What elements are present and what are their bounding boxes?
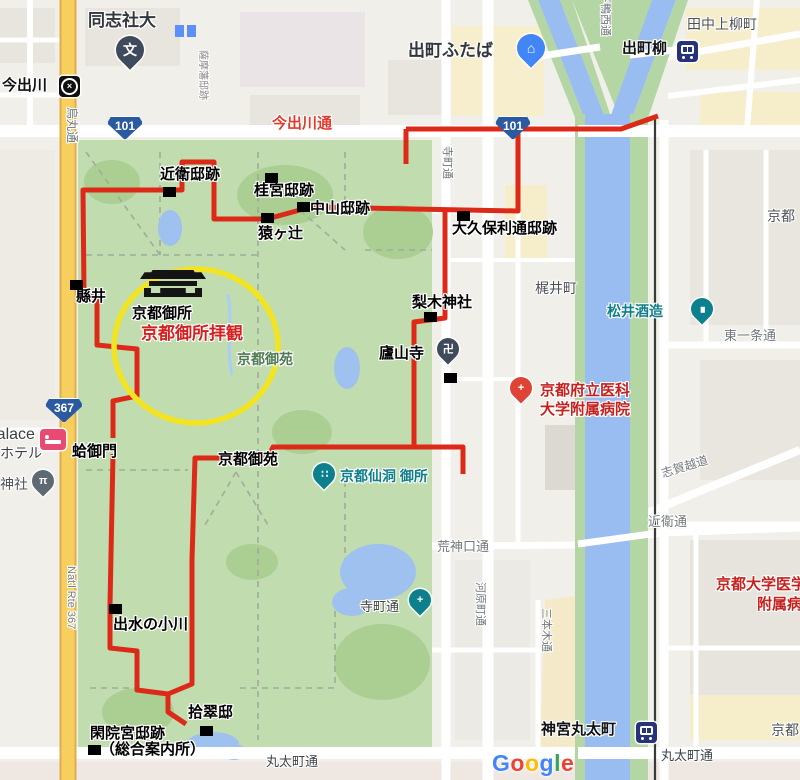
street-label-higashi-ichijo-dori: 東一条通: [724, 329, 776, 343]
station-label-jingu-marutamachi[interactable]: 神宮丸太町: [541, 722, 616, 738]
poi-label-kyodai-line1[interactable]: 京都大学医学部: [716, 577, 800, 593]
doshisha-building-tile: [187, 25, 196, 37]
street-label-imadegawa-dori: 今出川通: [272, 116, 332, 132]
poi-label-hospital-line2[interactable]: 大学附属病院: [540, 402, 630, 418]
annotation-shusuitei: 拾翠邸: [188, 705, 233, 721]
poi-label-palace-hotel-line1[interactable]: Palace: [0, 427, 35, 444]
annotation-sarugatsuji: 猿ヶ辻: [258, 226, 303, 242]
street-label-shimogamo-nishi: 下鴨西通: [598, 0, 610, 36]
street-label-marutamachi-east: 丸太町通: [661, 749, 713, 763]
marker-square: [424, 312, 437, 322]
annotation-konoe-teiato: 近衛邸跡: [160, 167, 220, 183]
annotation-gosho-haikan: 京都御所拝観: [141, 325, 243, 343]
street-label-konoe-dori: 近衛通: [648, 515, 687, 529]
marker-square: [70, 280, 83, 290]
street-label-marutamachi-west: 丸太町通: [266, 755, 318, 769]
annotation-nakayama-teiato: 中山邸跡: [310, 201, 370, 217]
annotation-okubo-toshimichi-teiato: 大久保利通邸跡: [452, 221, 557, 237]
marker-square: [457, 211, 470, 221]
palace-icon: [140, 270, 206, 297]
subway-station-icon[interactable]: ×: [59, 76, 80, 97]
annotation-katsuranomiya-teiato: 桂宮邸跡: [254, 183, 314, 199]
poi-label-matsui-shuzo[interactable]: 松井酒造: [607, 304, 663, 319]
annotation-kanin-no-miya-line2: （総合案内所）: [100, 742, 205, 758]
subway-glyph: ×: [61, 78, 78, 95]
area-label-kajii-cho: 梶井町: [535, 281, 577, 296]
street-label-kawaramachi-dori: 河原町通: [473, 582, 485, 626]
street-label-sanbongi-dori: 三本木通: [539, 608, 551, 652]
marker-square: [88, 745, 101, 755]
poi-label-sento-gosho[interactable]: 京都仙洞 御所: [340, 469, 428, 484]
street-label-satsuma-hanteiato: 薩摩藩邸跡: [197, 50, 208, 100]
street-label-natl-rte-367: Nat'l Rte 367: [64, 566, 76, 629]
park-label-kyoto-gyoen[interactable]: 京都御苑: [237, 352, 293, 367]
area-label-kyoto-clipped-se: 京都: [771, 723, 799, 738]
street-label-kojinguchi-dori: 荒神口通: [437, 540, 489, 554]
poi-label-palace-hotel-line2[interactable]: ホテル: [0, 446, 42, 461]
area-label-kyoto-clipped-ne: 京都: [767, 209, 795, 224]
train-station-icon-demachiyanagi[interactable]: [677, 41, 698, 62]
street-label-teramachi-north: 寺町通: [440, 146, 452, 179]
poi-label-kyodai-line2[interactable]: 附属病院: [757, 597, 800, 613]
annotation-agatai: 縣井: [76, 289, 106, 305]
annotation-kyoto-gosho: 京都御所: [132, 306, 192, 322]
google-logo[interactable]: Google: [492, 750, 574, 777]
annotation-rozanji: 廬山寺: [379, 346, 424, 362]
marker-square: [109, 604, 122, 614]
marker-square: [265, 173, 278, 183]
marker-square: [297, 202, 310, 212]
marker-square: [200, 726, 213, 736]
station-label-imadegawa[interactable]: 今出川: [2, 78, 47, 94]
marker-square: [261, 213, 274, 223]
annotation-kanin-no-miya-line1: 閑院宮邸跡: [90, 726, 165, 742]
marker-square: [444, 373, 457, 383]
area-label-tanaka-kamiyanagi: 田中上柳町: [687, 17, 757, 32]
poi-label-doshisha[interactable]: 同志社大: [88, 12, 156, 30]
annotation-nashinoki-jinja: 梨木神社: [412, 295, 472, 311]
street-label-teramachi-south: 寺町通: [360, 600, 399, 614]
doshisha-building-tile: [175, 25, 184, 37]
hotel-icon[interactable]: [40, 429, 66, 450]
poi-label-shrine[interactable]: 神社: [0, 477, 28, 492]
train-station-icon-jingu-marutamachi[interactable]: [636, 722, 657, 743]
station-label-demachiyanagi[interactable]: 出町柳: [622, 41, 667, 57]
annotation-hamaguri-gomon: 蛤御門: [72, 444, 117, 460]
bed-icon: [45, 435, 49, 439]
annotation-kyoto-gyoen: 京都御苑: [218, 452, 278, 468]
marker-square: [163, 187, 176, 197]
poi-label-hospital-line1[interactable]: 京都府立医科: [540, 383, 630, 399]
annotation-demizu-no-ogawa: 出水の小川: [113, 617, 188, 633]
poi-label-demachi-futaba[interactable]: 出町ふたば: [408, 42, 493, 60]
map-canvas[interactable]: 今出川通 烏丸通 Nat'l Rte 367 寺町通 寺町通 河原町通 三本木通…: [0, 0, 800, 780]
street-label-karasuma-dori: 烏丸通: [65, 107, 78, 143]
